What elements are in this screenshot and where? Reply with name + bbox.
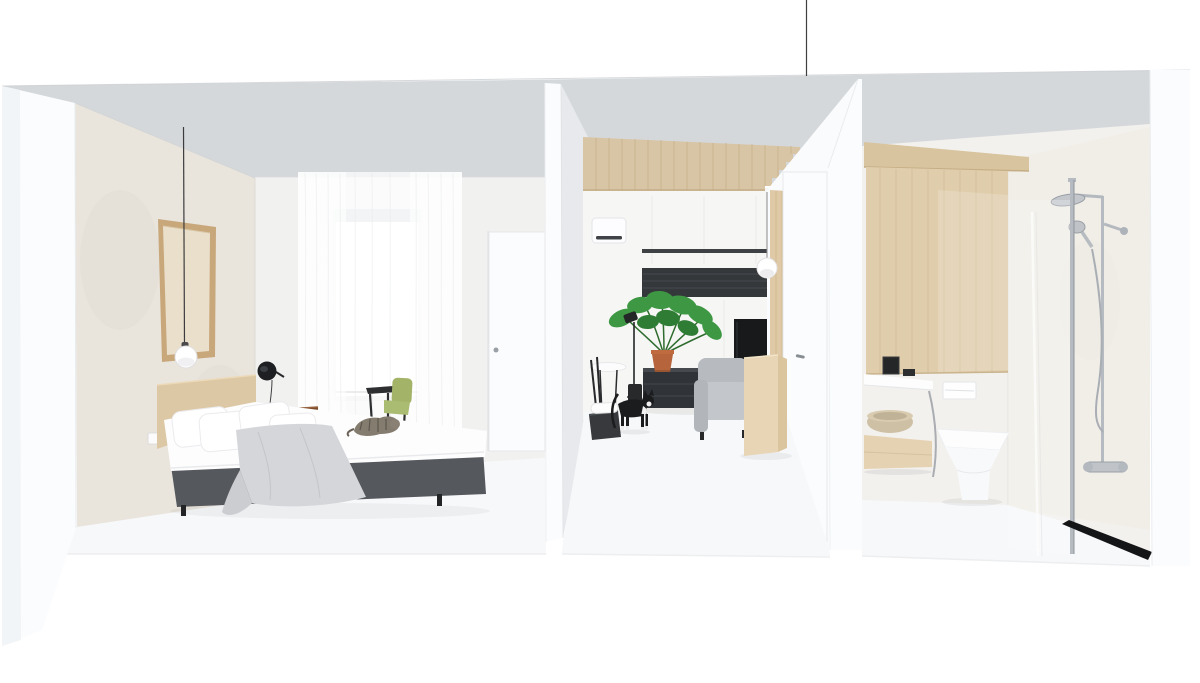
vessel-bowl: [867, 410, 913, 433]
armchair-back-cushion: [391, 377, 412, 404]
wall-mirror: [883, 357, 899, 374]
slab-shading: [2, 86, 21, 646]
toilet-seat: [937, 429, 1009, 450]
pendant-globe-shade: [760, 269, 774, 277]
cat-shadow: [618, 430, 650, 435]
sliding-wood-door[interactable]: [866, 167, 1008, 374]
sofa-leg: [700, 432, 704, 440]
wall-texture-blotch: [80, 190, 160, 330]
bed-leg: [437, 494, 442, 506]
mixer-knob[interactable]: [1083, 462, 1093, 472]
left-cut-wall: [2, 86, 76, 646]
lamp-lens: [260, 366, 268, 372]
ac-vent: [596, 236, 622, 240]
frame-canvas: [163, 226, 210, 355]
bathroom: [862, 70, 1190, 566]
table-top: [590, 363, 626, 372]
right-cut-wall: [1150, 70, 1190, 566]
glass-frame: [1070, 180, 1074, 554]
render-canvas[interactable]: [0, 0, 1200, 683]
bed-leg: [181, 505, 186, 516]
divider-cut-face: [545, 83, 563, 542]
cat-muzzle: [647, 402, 652, 407]
living-room: [562, 79, 862, 557]
door-glass-sheen: [938, 190, 1008, 372]
air-conditioner: [592, 218, 626, 243]
pendant-globe-shade: [178, 358, 195, 367]
wood-cabinet[interactable]: [740, 355, 792, 460]
soap-dish: [903, 369, 915, 376]
lamp-head: [258, 362, 277, 381]
bedroom-door[interactable]: [488, 231, 545, 451]
cabinet-front: [744, 355, 778, 456]
armchair-seat-cushion: [384, 400, 410, 415]
dark-bench: [589, 411, 621, 440]
picture-frame: [158, 219, 216, 362]
door-leaf[interactable]: [489, 232, 545, 451]
sofa-armrest: [694, 380, 708, 432]
cabinet-side: [778, 355, 787, 452]
cat-head: [390, 419, 400, 429]
drawer-shadow: [864, 469, 932, 475]
terracotta-pot: [651, 350, 674, 372]
bracket-flange: [1120, 227, 1128, 235]
door-handle[interactable]: [494, 348, 499, 353]
mixer-knob[interactable]: [1118, 462, 1128, 472]
shelf-rail: [642, 249, 788, 253]
shower-glass-panel: [1008, 178, 1076, 556]
